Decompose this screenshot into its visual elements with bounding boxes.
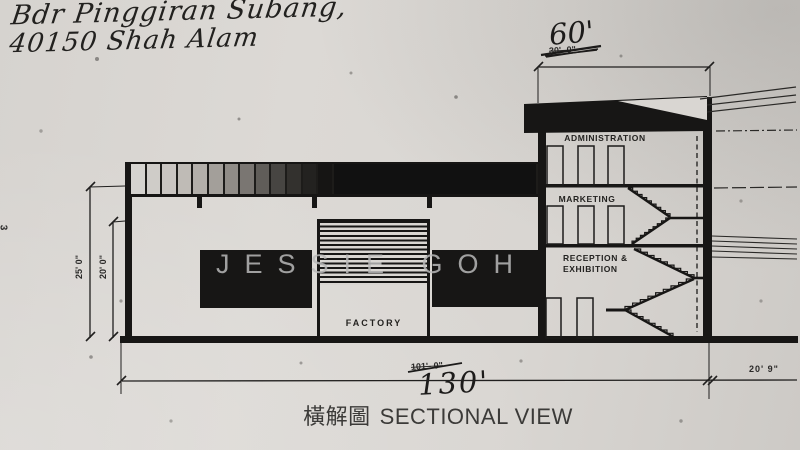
clerestory-panel — [318, 164, 334, 194]
drawing-title: 橫解圖SECTIONAL VIEW — [248, 399, 628, 431]
clerestory-panel — [209, 164, 225, 194]
clerestory-panel-dark — [334, 164, 538, 194]
stairs — [625, 188, 694, 340]
clerestory-panel — [271, 164, 287, 194]
clerestory-panel — [256, 164, 272, 194]
clerestory-panel — [131, 164, 147, 194]
ground-line — [120, 336, 798, 343]
roof-extension-lines — [700, 87, 796, 112]
clerestory-panel — [162, 164, 178, 194]
clerestory-panel — [303, 164, 319, 194]
clerestory-panel — [178, 164, 194, 194]
drawing-title-cjk: 橫解圖 — [303, 404, 371, 429]
watermark-text: JESSIE GOH — [216, 249, 528, 280]
clerestory-panel — [287, 164, 303, 194]
drawing-title-en: SECTIONAL VIEW — [380, 404, 573, 429]
clerestory-band — [131, 162, 538, 197]
clerestory-panel — [193, 164, 209, 194]
clerestory-panel — [240, 164, 256, 194]
clerestory-panel — [225, 164, 241, 194]
scanned-sectional-drawing: Bdr Pinggiran Subang, 40150 Shah Alam 3 … — [0, 0, 800, 450]
office-right-wall — [703, 97, 712, 337]
clerestory-panel — [147, 164, 163, 194]
right-extension-lines — [712, 130, 797, 259]
office-left-wall — [538, 131, 546, 337]
label-factory: FACTORY — [320, 318, 428, 328]
